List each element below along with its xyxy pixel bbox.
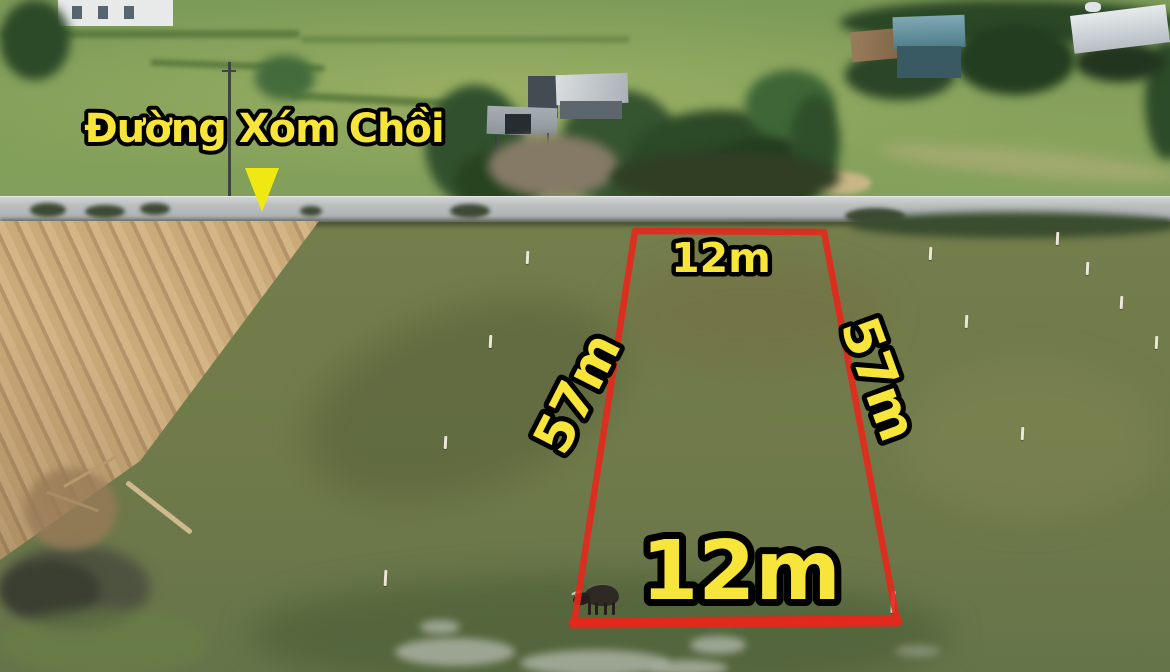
annotation-overlay: Đường Xóm Chồi 12m 57m 57m 12m [0, 0, 1170, 672]
plot-bottom-width-label: 12m [641, 524, 841, 619]
plot-left-length-label: 57m [522, 323, 633, 463]
plot-right-length-label: 57m [828, 310, 928, 449]
aerial-land-photo: Đường Xóm Chồi 12m 57m 57m 12m [0, 0, 1170, 672]
road-name-label: Đường Xóm Chồi [84, 106, 443, 152]
plot-top-width-label: 12m [671, 234, 771, 282]
plot-outline-bottom-edge [574, 621, 897, 623]
down-arrow-icon [245, 168, 279, 212]
